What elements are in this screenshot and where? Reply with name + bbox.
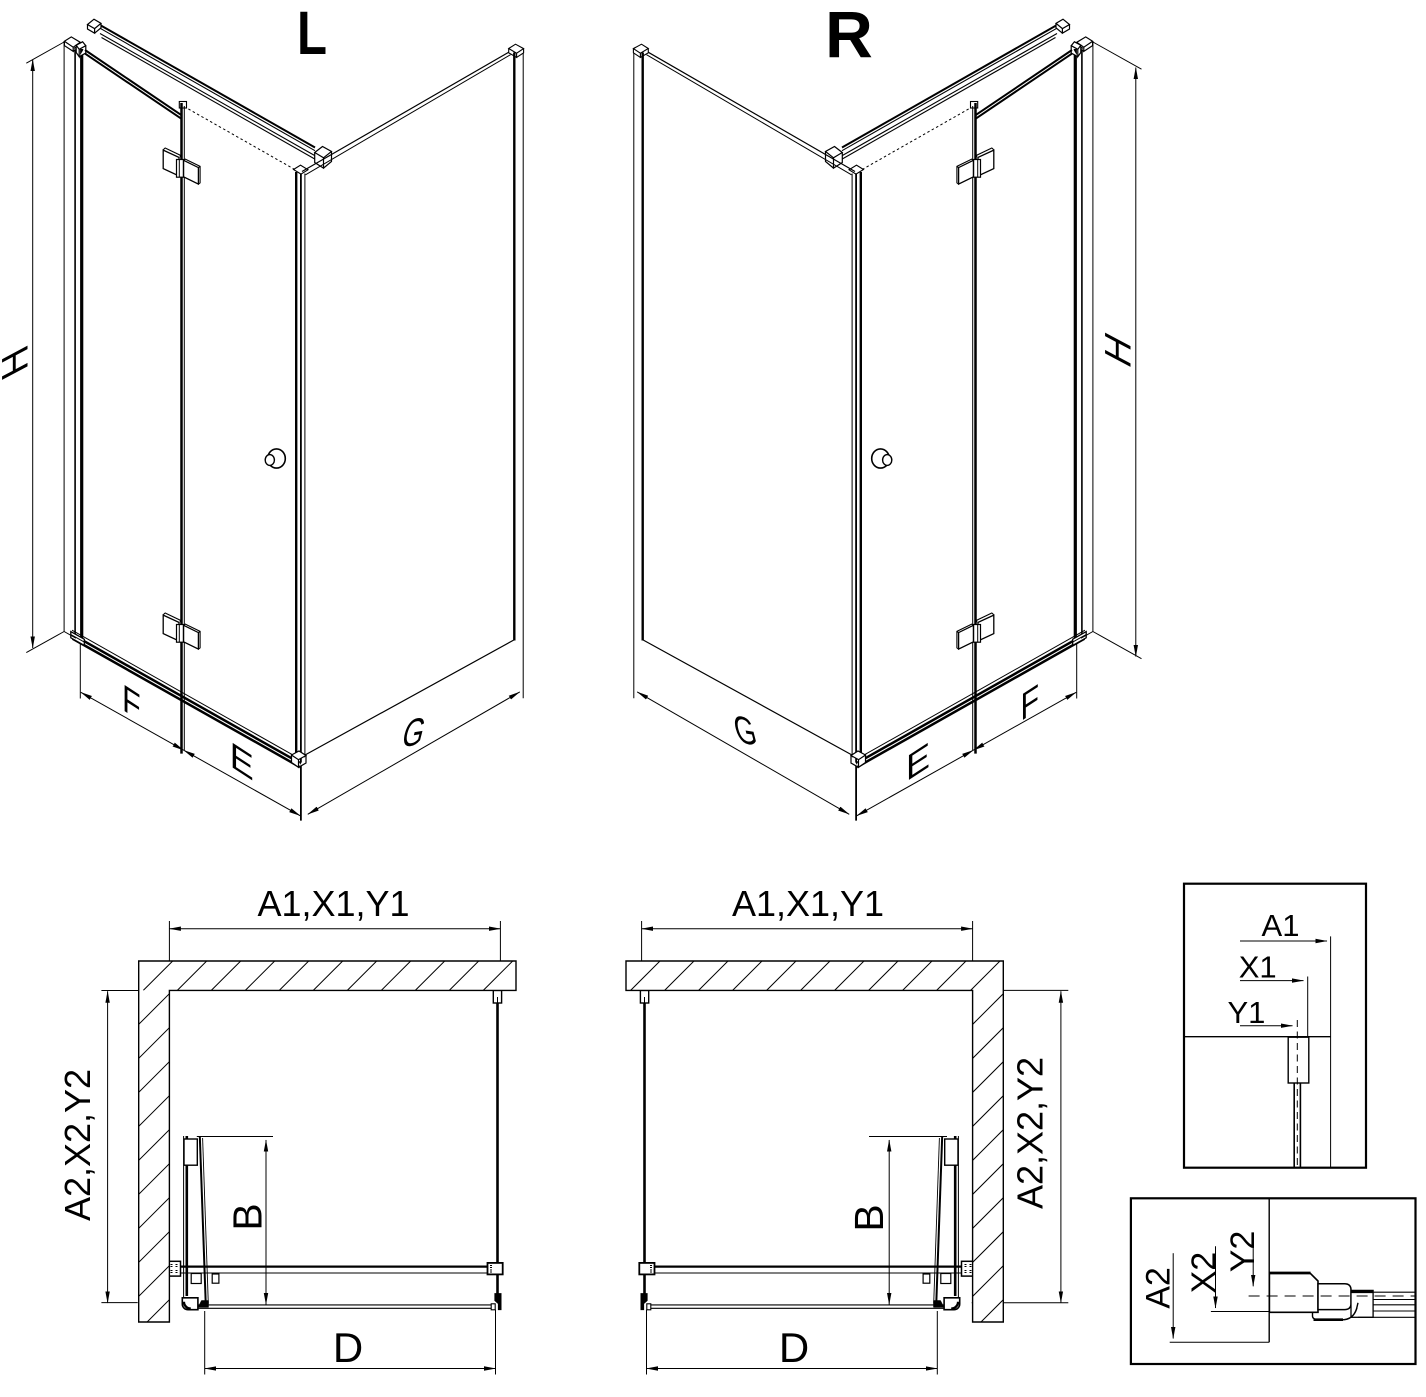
svg-text:D: D (333, 1324, 363, 1371)
svg-text:A2,X2,Y2: A2,X2,Y2 (57, 1069, 98, 1221)
svg-text:X1: X1 (1239, 950, 1277, 985)
svg-text:B: B (225, 1203, 271, 1230)
svg-text:A1: A1 (1262, 908, 1300, 943)
svg-text:R: R (825, 0, 873, 71)
svg-text:A1,X1,Y1: A1,X1,Y1 (732, 883, 884, 924)
svg-text:A2,X2,Y2: A2,X2,Y2 (1010, 1057, 1051, 1209)
svg-text:Y1: Y1 (1227, 995, 1265, 1030)
svg-text:A1,X1,Y1: A1,X1,Y1 (257, 883, 409, 924)
svg-text:A2: A2 (1139, 1267, 1177, 1309)
svg-text:D: D (779, 1324, 809, 1371)
svg-text:B: B (846, 1204, 892, 1231)
svg-text:Y2: Y2 (1224, 1231, 1262, 1273)
svg-text:X2: X2 (1185, 1252, 1223, 1294)
svg-text:L: L (297, 0, 327, 67)
